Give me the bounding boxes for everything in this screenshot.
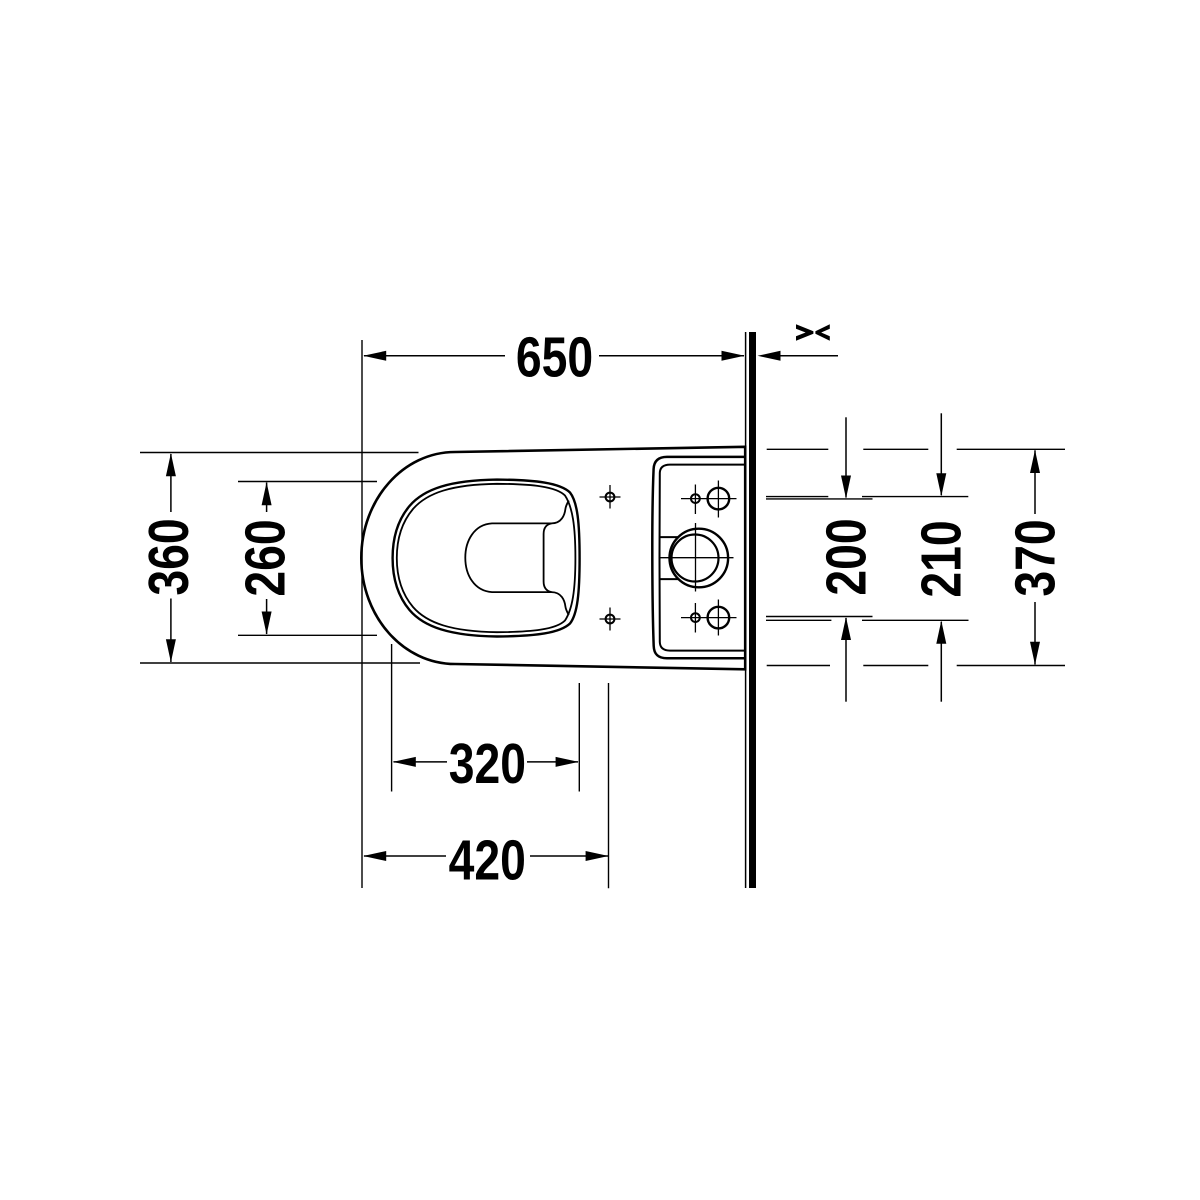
svg-text:260: 260 [233, 519, 296, 596]
svg-text:650: 650 [516, 325, 593, 388]
svg-text:370: 370 [1003, 519, 1066, 596]
svg-text:200: 200 [814, 518, 877, 595]
svg-text:320: 320 [449, 732, 526, 795]
svg-text:360: 360 [137, 518, 200, 595]
svg-text:420: 420 [449, 828, 526, 891]
svg-text:210: 210 [909, 520, 972, 597]
